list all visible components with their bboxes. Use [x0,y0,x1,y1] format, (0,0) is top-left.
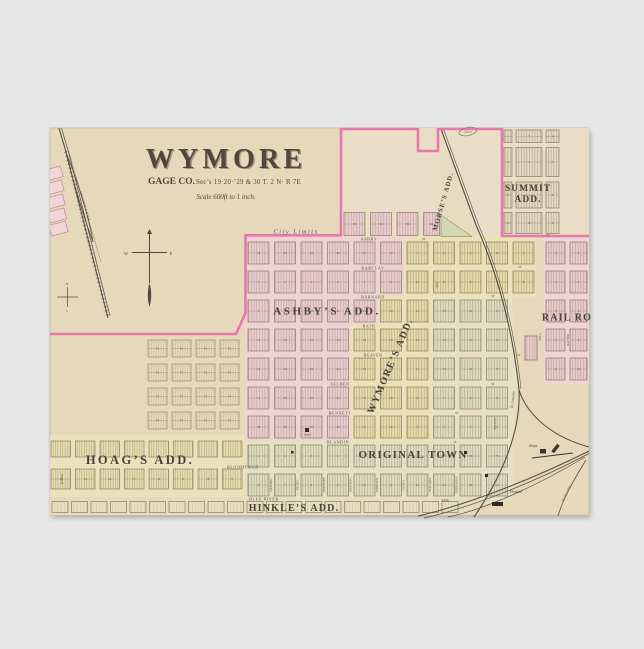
svg-text:SUMMIT: SUMMIT [505,184,551,194]
svg-text:NIAGARA: NIAGARA [428,477,432,492]
svg-text:NEWTON: NEWTON [349,478,353,492]
svg-text:HINKLE’S ADD.: HINKLE’S ADD. [249,503,340,514]
svg-text:ORIGINAL TOWN: ORIGINAL TOWN [358,449,467,461]
svg-text:ST: ST [453,440,457,444]
svg-text:HOAG’S ADD.: HOAG’S ADD. [86,453,194,467]
svg-text:ST: ST [491,382,495,386]
svg-text:NORWICH: NORWICH [375,477,379,492]
svg-text:Scale 600ft to 1 inch.: Scale 600ft to 1 inch. [196,193,256,201]
svg-text:ST: ST [455,411,459,415]
svg-text:AVE: AVE [435,282,439,288]
svg-text:NELSON: NELSON [493,417,497,430]
svg-text:RAIL RO: RAIL RO [542,313,592,324]
svg-text:WYMORE: WYMORE [146,144,307,175]
svg-text:City Limits: City Limits [273,229,318,236]
svg-text:ST: ST [422,237,426,241]
svg-text:NEWARK: NEWARK [269,478,273,492]
svg-text:BENNETT: BENNETT [329,411,351,416]
svg-text:Shops: Shops [529,444,538,448]
svg-text:BLUE RIVER: BLUE RIVER [249,497,278,502]
svg-text:MAPLE: MAPLE [60,474,64,485]
svg-text:ASHBY’S ADD.: ASHBY’S ADD. [273,306,381,318]
svg-text:Sec’s 19·20·’29 & 30 T. 2 N· R: Sec’s 19·20·’29 & 30 T. 2 N· R 7E [196,179,301,186]
svg-text:ST: ST [517,353,521,357]
svg-text:ASHBY: ASHBY [361,237,378,242]
svg-text:NEARY: NEARY [296,479,300,490]
svg-text:ST: ST [491,294,495,298]
svg-text:BLOOMFIELD: BLOOMFIELD [227,465,259,470]
svg-text:BARNARD: BARNARD [361,295,385,300]
svg-text:RIPON: RIPON [464,131,472,134]
svg-text:E: E [170,251,173,256]
svg-text:AVE: AVE [441,498,449,503]
svg-text:BATH: BATH [363,324,376,329]
svg-text:School: School [304,434,311,437]
svg-text:ST: ST [546,233,550,237]
svg-text:BLANDIN: BLANDIN [327,440,349,445]
svg-text:NEWPORT: NEWPORT [322,478,326,493]
svg-text:RAFTER: RAFTER [566,333,570,346]
svg-text:MILL: MILL [538,333,542,341]
svg-text:BARCLAY: BARCLAY [362,266,385,271]
svg-text:ST: ST [518,265,522,269]
svg-text:NEBRASKA: NEBRASKA [455,476,459,493]
svg-text:NANCY: NANCY [402,479,406,491]
svg-text:Elevator: Elevator [509,490,523,494]
svg-text:GAGE CO.: GAGE CO. [148,177,195,187]
svg-text:ADD.: ADD. [515,195,542,205]
svg-text:SELDEN: SELDEN [331,382,350,387]
svg-text:BEAVER: BEAVER [363,353,382,358]
